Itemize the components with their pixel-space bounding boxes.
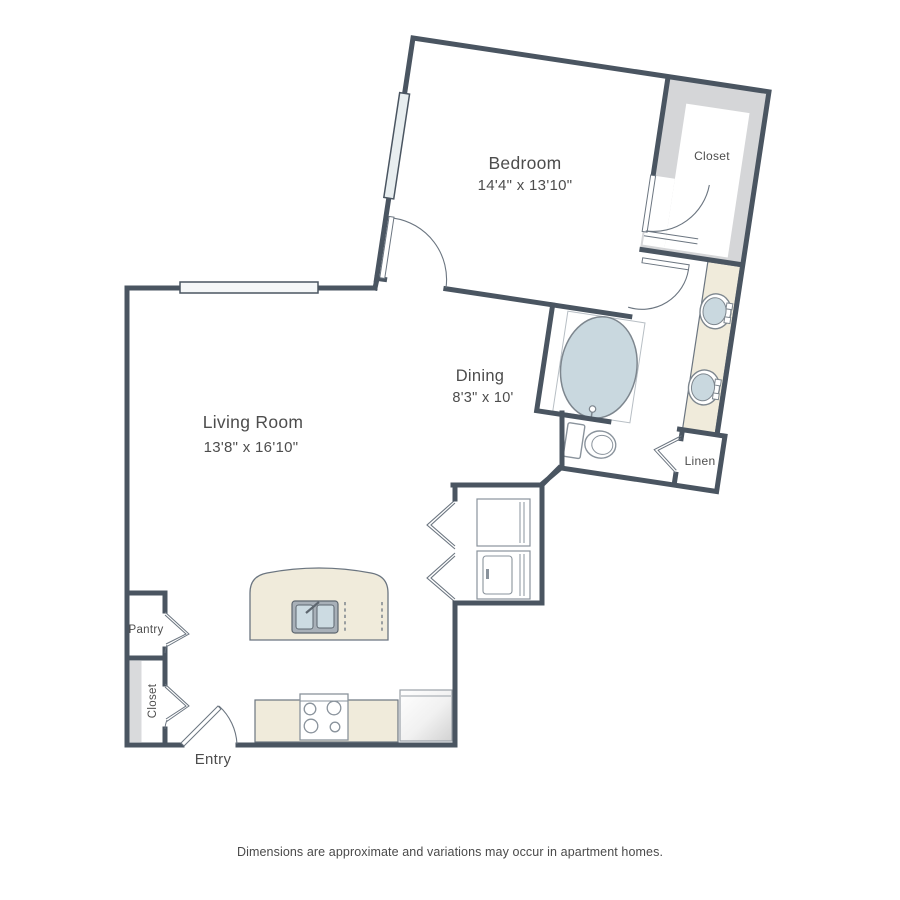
linen-door bbox=[651, 432, 681, 473]
kitchen-sink bbox=[292, 601, 338, 633]
toilet bbox=[563, 423, 618, 464]
hall-closet-door bbox=[165, 684, 189, 729]
linen-closet-label: Linen bbox=[685, 454, 716, 468]
bathroom-door-arc bbox=[628, 262, 688, 316]
bedroom-closet-label: Closet bbox=[694, 149, 730, 163]
bathroom-door-leaf bbox=[642, 258, 689, 270]
entry-door-leaf bbox=[181, 706, 221, 746]
tub-faucet-icon bbox=[589, 405, 596, 412]
stove-burner bbox=[304, 703, 316, 715]
dining-dims-label: 8'3" x 10' bbox=[452, 390, 513, 406]
pantry-label: Pantry bbox=[128, 624, 163, 636]
washer bbox=[477, 499, 530, 546]
stove-burner bbox=[304, 719, 318, 733]
bathtub bbox=[554, 311, 644, 423]
refrigerator bbox=[400, 690, 452, 741]
living-room-dims-label: 13'8" x 16'10" bbox=[204, 439, 299, 456]
floor-plan: Bedroom 14'4" x 13'10" Closet Living Roo… bbox=[0, 0, 900, 900]
entry-door-arc bbox=[219, 706, 237, 744]
bedroom-door-arc bbox=[385, 218, 455, 288]
stove-burner bbox=[330, 722, 340, 732]
stove bbox=[300, 694, 348, 740]
bedroom-window bbox=[384, 93, 410, 199]
dryer-handle bbox=[486, 569, 489, 579]
pantry-door bbox=[165, 612, 189, 653]
living-room-window bbox=[180, 282, 318, 293]
hall-closet-shelf-band bbox=[130, 661, 142, 742]
main-unit bbox=[127, 279, 562, 746]
dining-label: Dining bbox=[456, 367, 505, 385]
floor-plan-page: Bedroom 14'4" x 13'10" Closet Living Roo… bbox=[0, 0, 900, 900]
stove-burner bbox=[327, 701, 341, 715]
entry-label: Entry bbox=[195, 751, 232, 768]
laundry-bifold-doors bbox=[427, 500, 455, 602]
dryer bbox=[477, 551, 530, 599]
hall-closet-label: Closet bbox=[147, 683, 159, 718]
disclaimer-text: Dimensions are approximate and variation… bbox=[237, 845, 663, 859]
living-room-label: Living Room bbox=[203, 412, 304, 432]
bedroom-label: Bedroom bbox=[488, 153, 561, 173]
bedroom-dims-label: 14'4" x 13'10" bbox=[478, 177, 573, 194]
